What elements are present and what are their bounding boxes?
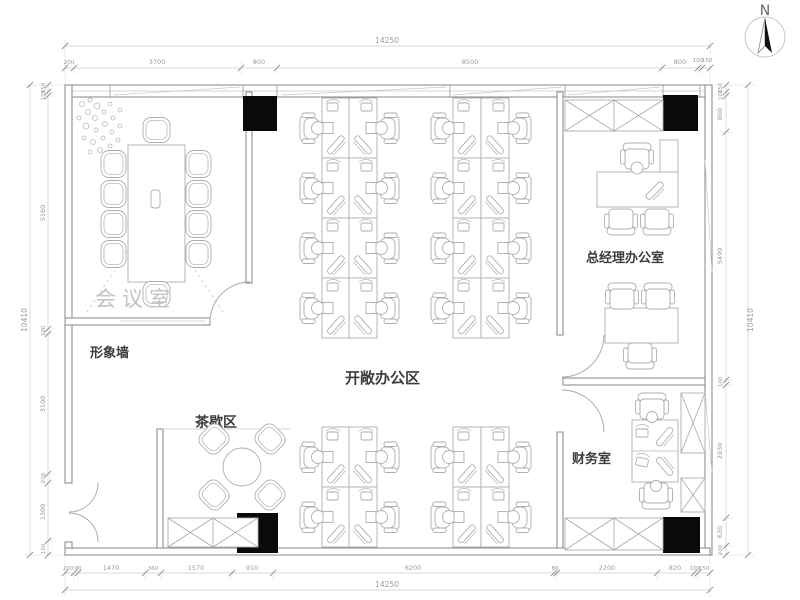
dim-label: 200 — [63, 566, 74, 572]
dim-label: 1570 — [188, 564, 205, 572]
dimension-chain-top: 14250 200 3700 800 8500 800 100 150 — [62, 36, 713, 85]
floor-plan-canvas: 14250 200 3700 800 8500 800 100 150 1425… — [0, 0, 800, 600]
dim-label: 6200 — [405, 564, 422, 572]
dim-label: 800 — [716, 108, 724, 120]
dim-label: 5490 — [716, 248, 724, 265]
workstation-bank-upper-left — [300, 98, 399, 338]
round-table — [223, 448, 261, 486]
dimension-chain-right: 10410 150 100 800 5490 100 2930 630 200 — [710, 82, 755, 558]
dim-label: 10410 — [746, 308, 755, 332]
workstation-bank-lower-right — [431, 427, 531, 547]
dim-label: 14250 — [375, 580, 399, 589]
dim-label: 100 — [41, 543, 47, 554]
plant — [77, 98, 122, 154]
workstation-bank-upper-right — [431, 98, 531, 338]
dim-label: 3100 — [39, 396, 47, 413]
table-phone — [151, 190, 160, 208]
finance-room-label: 财务室 — [572, 451, 611, 467]
dim-label: 3700 — [149, 58, 166, 66]
desk-return — [660, 140, 678, 172]
gm-meeting-table — [605, 308, 678, 343]
dim-label: 10410 — [20, 308, 29, 332]
dim-label: 80 — [552, 566, 559, 572]
dim-label: 200 — [64, 60, 75, 66]
dim-label: 800 — [674, 58, 686, 66]
open-office: 开敞办公区 — [300, 98, 531, 547]
dim-label: 150 — [702, 58, 713, 64]
finance-room: 财务室 — [572, 393, 678, 509]
north-label: N — [760, 3, 770, 19]
dim-label: 100 — [718, 376, 724, 387]
dimension-chain-left: 10410 150 100 5160 100 3100 200 1300 100 — [20, 82, 65, 558]
dim-label: 100 — [41, 325, 47, 336]
dimension-chain-bottom: 14250 200 90 1470 360 1570 910 6200 80 2… — [62, 555, 713, 597]
dim-label: 14250 — [375, 36, 399, 45]
dim-label: 200 — [718, 544, 724, 555]
floor-plan: 14250 200 3700 800 8500 800 100 150 1425… — [0, 0, 800, 600]
dim-label: 910 — [246, 564, 258, 572]
dim-label: 90 — [75, 566, 82, 572]
image-wall-label: 形象墙 — [90, 345, 129, 361]
dim-label: 820 — [669, 564, 681, 572]
gm-office: 总经理办公室 — [586, 140, 678, 369]
executive-desk — [597, 172, 678, 207]
open-office-label: 开敞办公区 — [345, 369, 420, 387]
dim-label: 100 — [718, 89, 724, 100]
dim-label: 800 — [253, 58, 265, 66]
dim-label: 150 — [699, 566, 710, 572]
north-arrow-icon: N — [745, 3, 785, 57]
dim-label: 630 — [716, 526, 724, 538]
dim-label: 100 — [41, 89, 47, 100]
dim-label: 8500 — [462, 58, 479, 66]
meeting-room-label: 会议室 — [95, 287, 176, 311]
conference-table — [128, 145, 185, 282]
gm-office-label: 总经理办公室 — [586, 250, 664, 266]
dim-label: 1300 — [39, 504, 47, 521]
dim-label: 360 — [148, 566, 159, 572]
workstation-bank-lower-left — [300, 427, 399, 547]
dim-label: 5160 — [39, 205, 47, 222]
dim-label: 2200 — [599, 564, 616, 572]
dim-label: 200 — [41, 472, 47, 483]
dim-label: 1470 — [103, 564, 120, 572]
dim-label: 2930 — [716, 443, 724, 460]
